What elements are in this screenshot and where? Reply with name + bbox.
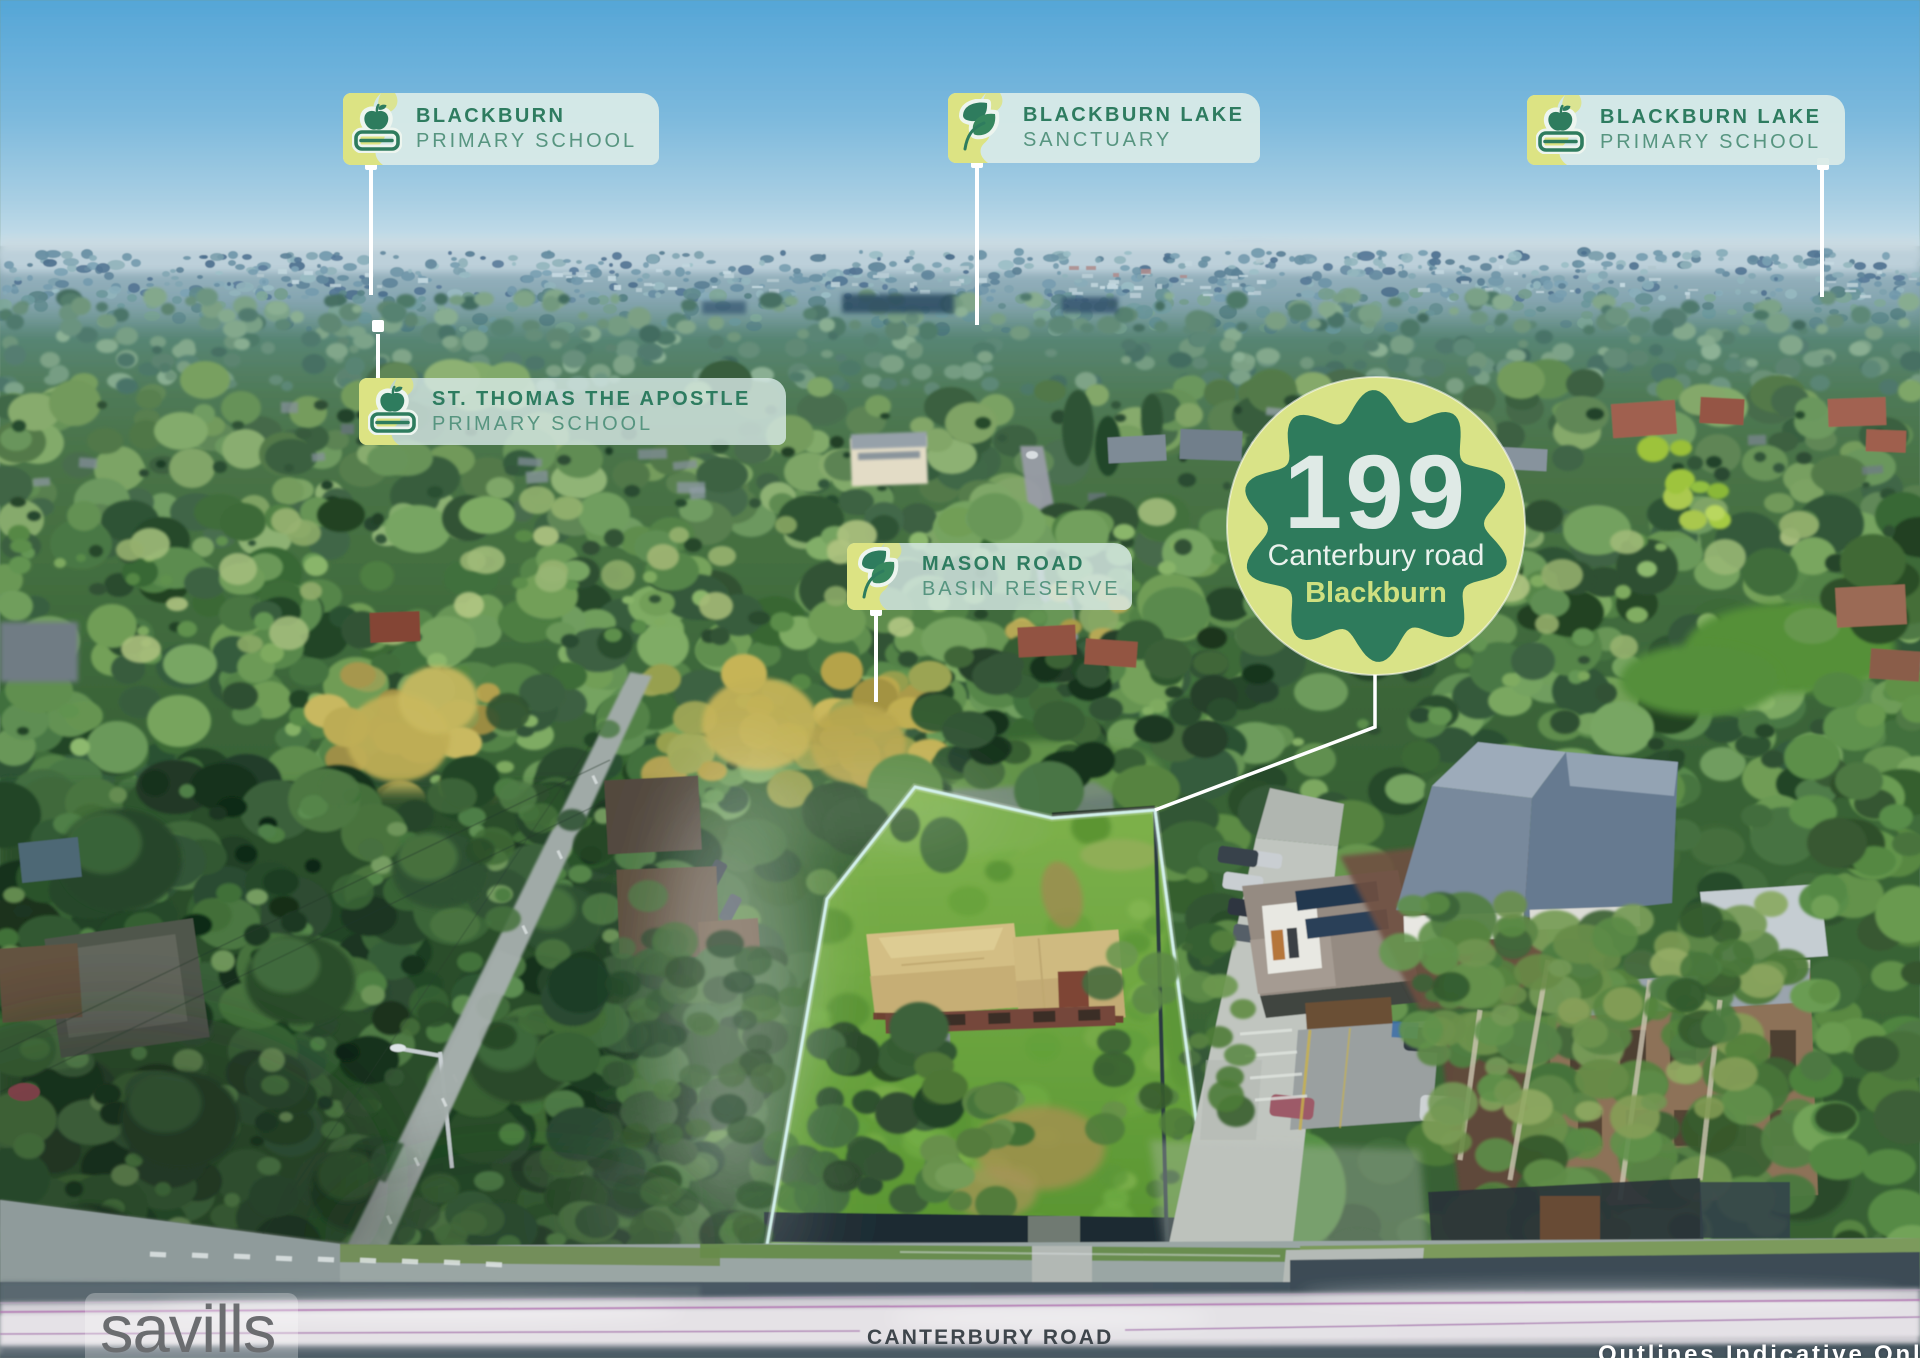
svg-text:199: 199 xyxy=(1284,434,1468,551)
svg-text:Blackburn: Blackburn xyxy=(1305,577,1447,609)
svg-text:Canterbury road: Canterbury road xyxy=(1268,539,1485,572)
